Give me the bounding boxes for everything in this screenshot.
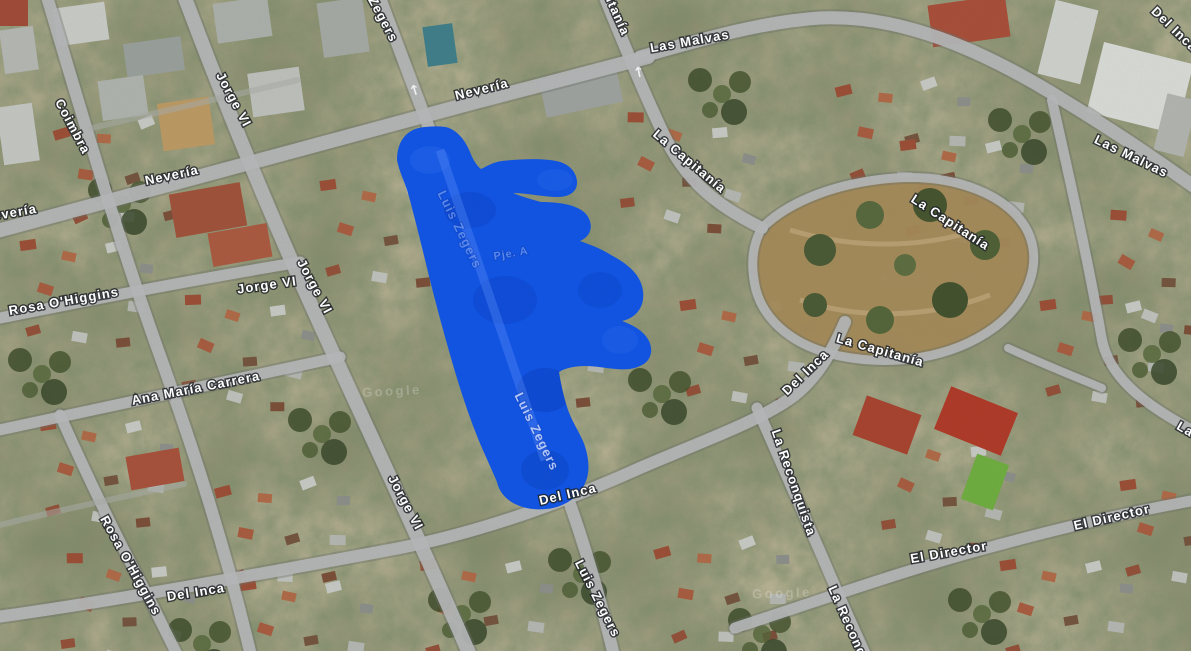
satellite-map[interactable]: ↑ ↑ Google Google Coimbra Jorge VI Never…	[0, 0, 1191, 651]
watermark: Google	[752, 584, 812, 601]
map-canvas[interactable]: ↑ ↑ Google Google Coimbra Jorge VI Never…	[0, 0, 1191, 651]
watermark: Google	[362, 382, 422, 400]
